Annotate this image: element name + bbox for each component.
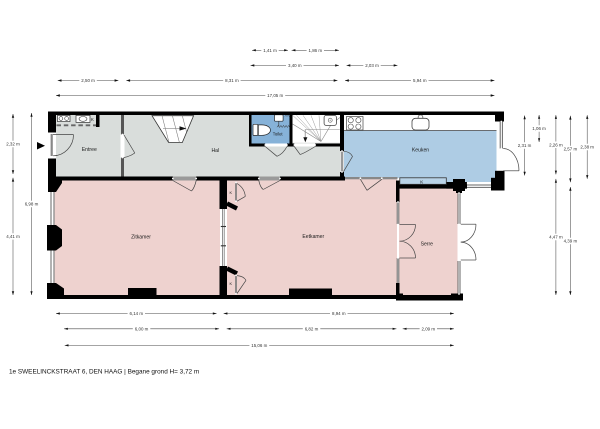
svg-text:Serre: Serre bbox=[421, 242, 434, 248]
svg-text:2,03 m: 2,03 m bbox=[365, 63, 379, 68]
svg-text:8,94 m: 8,94 m bbox=[332, 311, 346, 316]
svg-text:2,26 m: 2,26 m bbox=[549, 142, 563, 147]
svg-text:6,14 m: 6,14 m bbox=[130, 311, 144, 316]
svg-text:1,86 m: 1,86 m bbox=[309, 48, 323, 53]
svg-text:8,31 m: 8,31 m bbox=[225, 78, 239, 83]
svg-text:2,32 m: 2,32 m bbox=[6, 142, 20, 147]
svg-text:4,41 m: 4,41 m bbox=[6, 234, 20, 239]
svg-text:K: K bbox=[91, 117, 94, 122]
svg-text:4,47 m: 4,47 m bbox=[549, 235, 563, 240]
svg-text:K: K bbox=[420, 179, 423, 184]
svg-text:4,39 m: 4,39 m bbox=[564, 239, 578, 244]
svg-text:Hal: Hal bbox=[211, 148, 219, 154]
svg-text:15,06 m: 15,06 m bbox=[251, 343, 267, 348]
svg-text:K: K bbox=[230, 191, 233, 195]
svg-text:5,94 m: 5,94 m bbox=[413, 78, 427, 83]
svg-text:1e SWEELINCKSTRAAT 6, DEN HAAG: 1e SWEELINCKSTRAAT 6, DEN HAAG | Begane … bbox=[9, 368, 199, 375]
svg-text:2,50 m: 2,50 m bbox=[81, 78, 95, 83]
svg-text:2,31 m: 2,31 m bbox=[518, 143, 532, 148]
svg-text:3,40 m: 3,40 m bbox=[288, 63, 302, 68]
svg-text:6,98 m: 6,98 m bbox=[25, 202, 39, 207]
svg-text:K: K bbox=[230, 282, 233, 286]
svg-text:Toilet: Toilet bbox=[273, 132, 284, 137]
svg-text:1,06 m: 1,06 m bbox=[532, 126, 546, 131]
svg-text:6,00 m: 6,00 m bbox=[135, 326, 149, 331]
svg-text:2,09 m: 2,09 m bbox=[422, 326, 436, 331]
svg-text:17,05 m: 17,05 m bbox=[267, 93, 283, 98]
svg-text:2,38 m: 2,38 m bbox=[580, 145, 594, 150]
svg-text:Eetkamer: Eetkamer bbox=[302, 234, 324, 240]
svg-text:Keuken: Keuken bbox=[412, 147, 429, 153]
svg-text:6,82 m: 6,82 m bbox=[305, 326, 319, 331]
svg-text:Entree: Entree bbox=[82, 147, 97, 153]
svg-text:1,41 m: 1,41 m bbox=[263, 48, 277, 53]
svg-text:Zitkamer: Zitkamer bbox=[131, 235, 151, 241]
svg-text:2,57 m: 2,57 m bbox=[564, 147, 578, 152]
